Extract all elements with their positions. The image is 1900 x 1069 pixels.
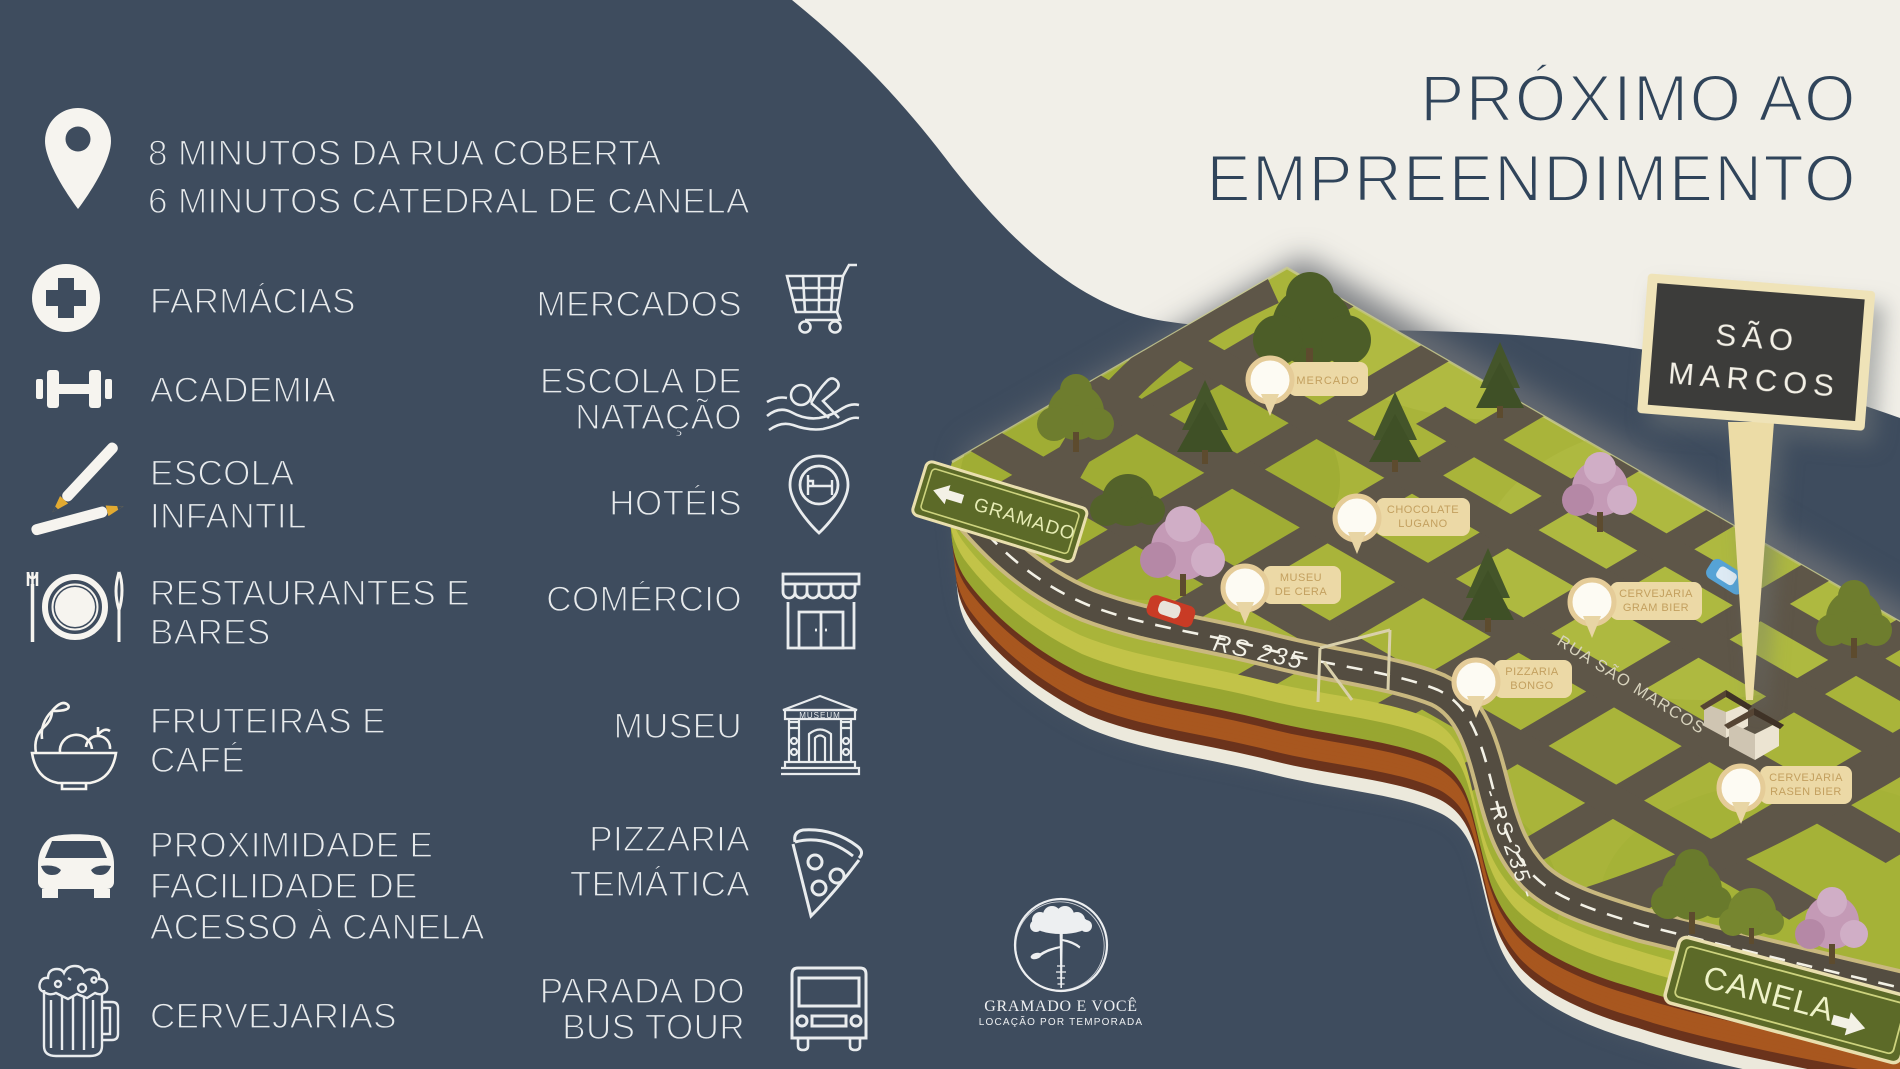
- svg-text:DE CERA: DE CERA: [1275, 586, 1328, 598]
- svg-text:CERVEJARIA: CERVEJARIA: [1619, 588, 1693, 600]
- svg-text:MERCADO: MERCADO: [1296, 375, 1359, 387]
- svg-text:SÃO: SÃO: [1714, 317, 1800, 358]
- svg-text:GRAM BIER: GRAM BIER: [1623, 602, 1689, 614]
- svg-text:CHOCOLATE: CHOCOLATE: [1387, 504, 1459, 516]
- svg-text:RASEN BIER: RASEN BIER: [1770, 786, 1842, 798]
- svg-text:MUSEU: MUSEU: [1280, 572, 1322, 584]
- svg-text:CERVEJARIA: CERVEJARIA: [1769, 772, 1843, 784]
- svg-text:LUGANO: LUGANO: [1398, 518, 1447, 530]
- svg-text:BONGO: BONGO: [1510, 680, 1553, 692]
- svg-text:GRAMADO E VOCÊ: GRAMADO E VOCÊ: [984, 996, 1138, 1015]
- svg-text:LOCAÇÃO POR TEMPORADA: LOCAÇÃO POR TEMPORADA: [979, 1015, 1144, 1028]
- svg-text:PIZZARIA: PIZZARIA: [1505, 666, 1559, 678]
